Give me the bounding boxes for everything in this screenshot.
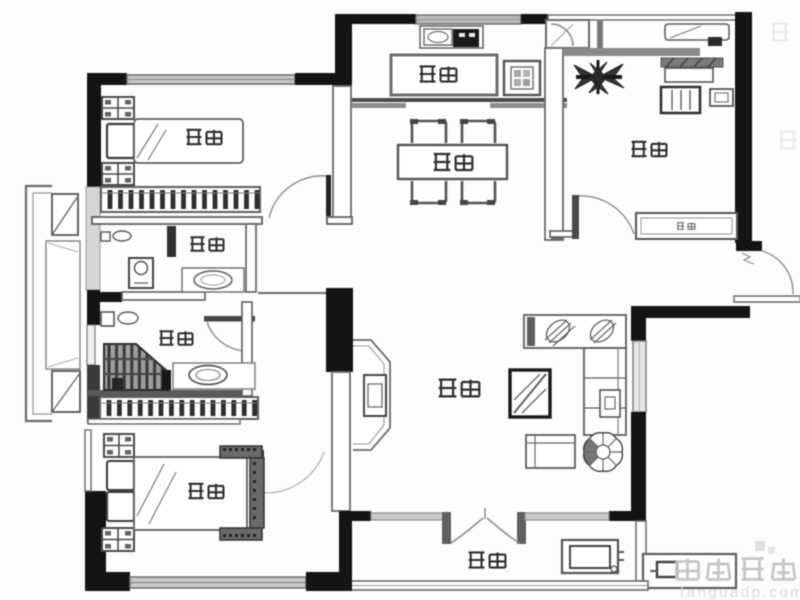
svg-text:fanguadp.com: fanguadp.com: [680, 584, 800, 600]
